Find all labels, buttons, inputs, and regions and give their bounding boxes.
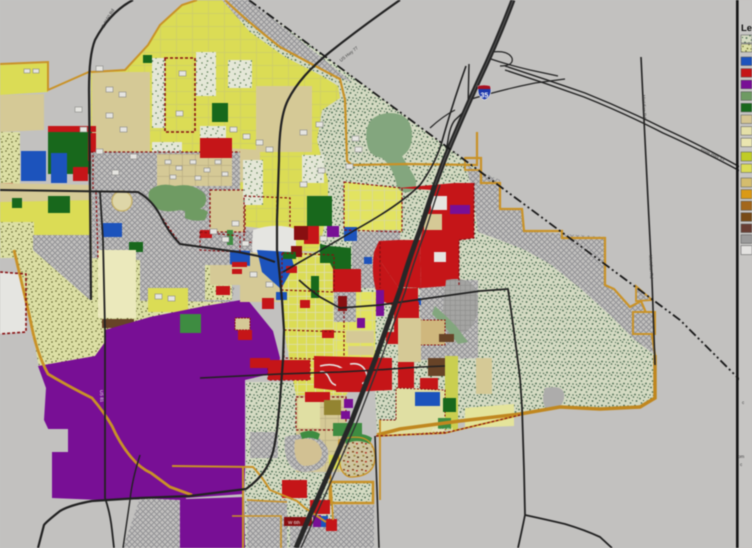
svg-text:US 81: US 81 xyxy=(99,390,104,403)
svg-text:om: om xyxy=(738,454,745,459)
svg-text:35: 35 xyxy=(481,93,489,100)
svg-text:Airport Rd: Airport Rd xyxy=(432,427,453,432)
svg-text:Legend: Legend xyxy=(741,23,752,34)
svg-text:W 6th: W 6th xyxy=(288,520,300,525)
